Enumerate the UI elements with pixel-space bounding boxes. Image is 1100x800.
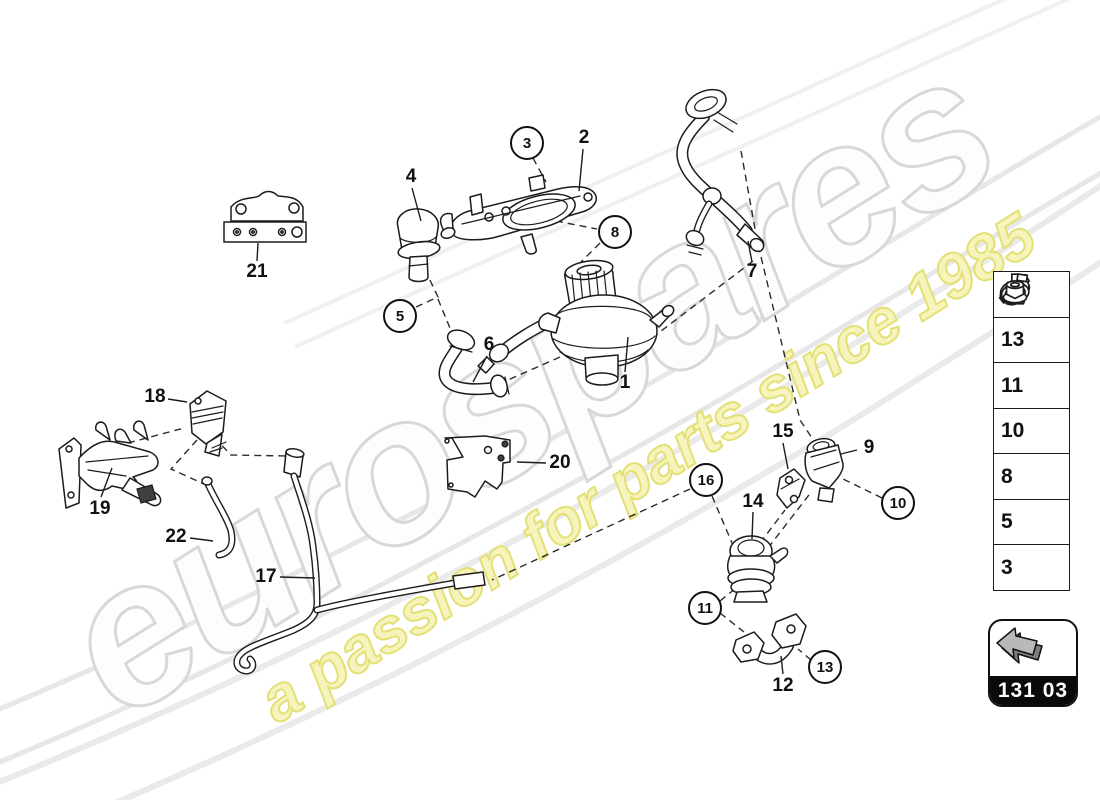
part-6-drawing xyxy=(444,326,509,398)
parts-diagram-page: eurospares a passion for parts since 198… xyxy=(0,0,1100,800)
callout-1[interactable]: 1 xyxy=(620,372,631,394)
sidebar-item-number: 8 xyxy=(994,465,1027,489)
sidebar-item-10[interactable]: 10 xyxy=(993,408,1070,455)
callout-20[interactable]: 20 xyxy=(549,452,570,474)
part-18-drawing xyxy=(190,391,226,456)
sidebar-item-number: 10 xyxy=(994,419,1027,443)
diagram-code-label: 131 03 xyxy=(990,676,1076,705)
callout-17[interactable]: 17 xyxy=(255,566,276,588)
sidebar-item-number: 5 xyxy=(994,510,1027,534)
part-9-drawing xyxy=(805,436,843,502)
callout-18[interactable]: 18 xyxy=(144,386,165,408)
part-19-drawing xyxy=(59,421,161,508)
part-21-drawing xyxy=(224,192,306,243)
sidebar-item-13[interactable]: 13 xyxy=(993,317,1070,364)
callout-circle-11[interactable]: 11 xyxy=(688,591,722,625)
part-20-drawing xyxy=(445,436,510,497)
callout-21[interactable]: 21 xyxy=(246,261,267,283)
sidebar-item-5[interactable]: 5 xyxy=(993,499,1070,546)
part-7-drawing xyxy=(682,84,767,255)
callout-12[interactable]: 12 xyxy=(772,675,793,697)
part-4-drawing xyxy=(397,209,441,282)
callout-14[interactable]: 14 xyxy=(742,491,763,513)
part-12-drawing xyxy=(733,614,806,662)
callout-4[interactable]: 4 xyxy=(406,166,417,188)
callout-7[interactable]: 7 xyxy=(747,261,758,283)
sidebar-item-11[interactable]: 11 xyxy=(993,362,1070,409)
thumbnail-column: 16131110853 xyxy=(993,271,1070,591)
callout-circle-5[interactable]: 5 xyxy=(383,299,417,333)
part-22-drawing xyxy=(202,477,232,555)
part-15-drawing xyxy=(777,469,805,508)
part-1-drawing xyxy=(478,258,676,385)
callout-circle-13[interactable]: 13 xyxy=(808,650,842,684)
callout-circle-8[interactable]: 8 xyxy=(598,215,632,249)
callout-9[interactable]: 9 xyxy=(864,437,875,459)
back-arrow-icon[interactable] xyxy=(990,621,1076,676)
callout-circle-16[interactable]: 16 xyxy=(689,463,723,497)
callout-15[interactable]: 15 xyxy=(772,421,793,443)
part-14-drawing xyxy=(728,536,788,602)
sidebar-item-number: 13 xyxy=(994,328,1027,352)
diagram-code-box[interactable]: 131 03 xyxy=(988,619,1078,707)
callout-19[interactable]: 19 xyxy=(89,498,110,520)
sidebar-item-number: 3 xyxy=(994,556,1027,580)
callout-circle-10[interactable]: 10 xyxy=(881,486,915,520)
callout-circle-3[interactable]: 3 xyxy=(510,126,544,160)
callout-2[interactable]: 2 xyxy=(579,127,590,149)
sidebar-item-8[interactable]: 8 xyxy=(993,453,1070,500)
sidebar-item-number: 11 xyxy=(994,374,1027,398)
part-2-drawing xyxy=(440,175,597,254)
callout-22[interactable]: 22 xyxy=(165,526,186,548)
callout-6[interactable]: 6 xyxy=(484,334,495,356)
sidebar-item-3[interactable]: 3 xyxy=(993,544,1070,591)
